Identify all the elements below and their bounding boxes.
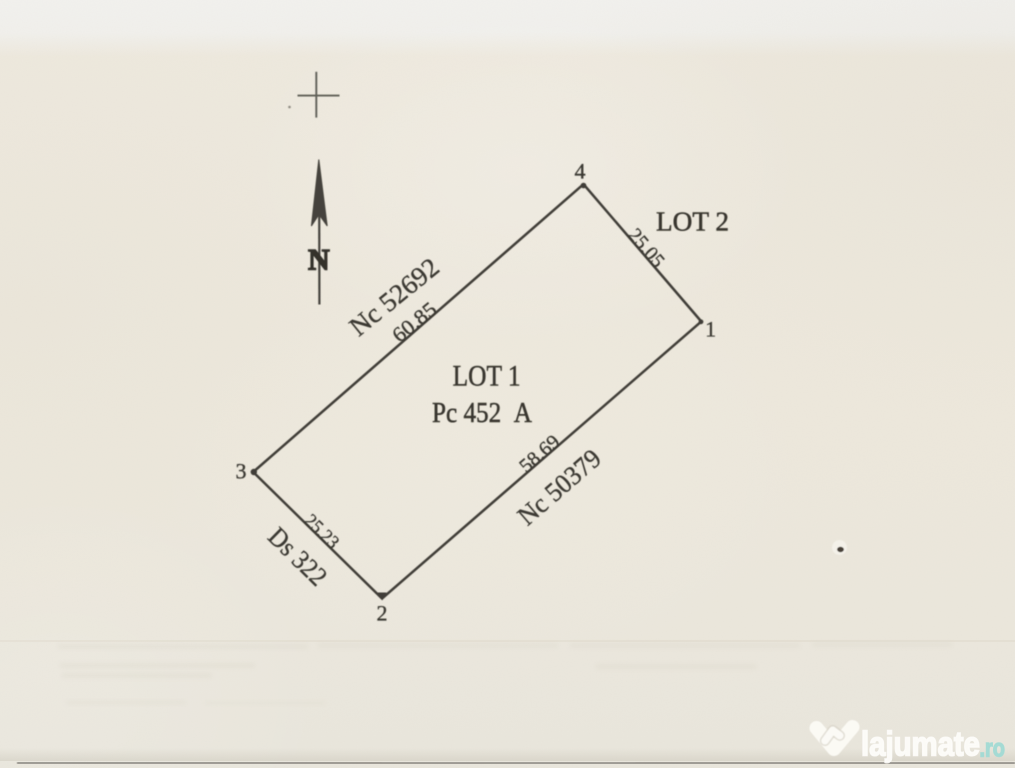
svg-text:Pc 452 A: Pc 452 A bbox=[432, 398, 533, 429]
svg-text:LOT 2: LOT 2 bbox=[656, 206, 729, 236]
svg-text:3: 3 bbox=[236, 458, 247, 483]
svg-text:1: 1 bbox=[705, 317, 716, 342]
svg-text:LOT 1: LOT 1 bbox=[453, 359, 521, 392]
svg-text:N: N bbox=[308, 244, 330, 277]
svg-text:.ro: .ro bbox=[980, 735, 1006, 763]
svg-text:4: 4 bbox=[575, 159, 586, 184]
svg-text:2: 2 bbox=[377, 601, 388, 626]
svg-text:lajumate: lajumate bbox=[861, 726, 980, 764]
